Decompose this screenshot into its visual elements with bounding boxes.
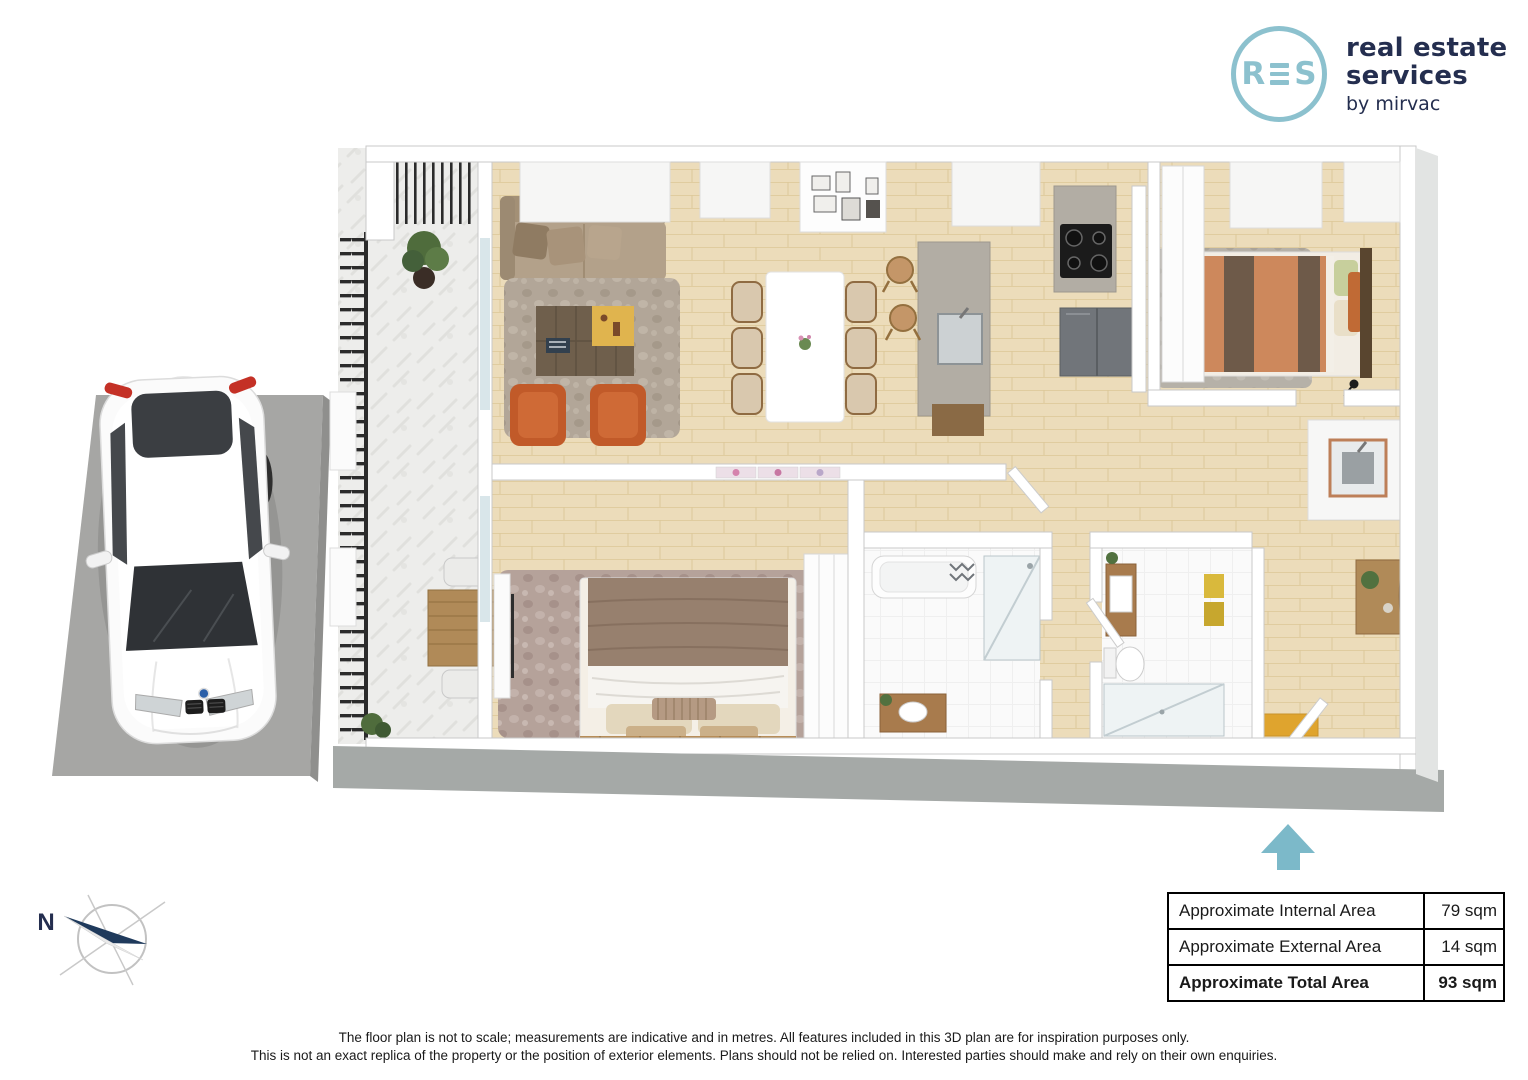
table-row: Approximate External Area 14 sqm — [1168, 929, 1504, 965]
picture-frame — [836, 172, 850, 192]
area-label: Approximate Internal Area — [1168, 893, 1424, 929]
compass-north-label: N — [37, 909, 54, 936]
compass-icon: N — [37, 895, 165, 985]
area-label: Approximate External Area — [1168, 929, 1424, 965]
car-emblem — [199, 688, 209, 698]
windows — [520, 162, 1400, 228]
towel — [1204, 602, 1224, 626]
logo-text: real estate services by mirvac — [1346, 34, 1507, 115]
disclaimer: The floor plan is not to scale; measurem… — [0, 1029, 1528, 1064]
logo-monogram-r: R — [1241, 59, 1265, 90]
master-wardrobe — [804, 554, 848, 738]
basin — [1110, 576, 1132, 612]
book — [546, 338, 570, 353]
bedroom-2-bed — [1192, 248, 1372, 396]
table-row-total: Approximate Total Area 93 sqm — [1168, 965, 1504, 1001]
front-wall-face — [333, 746, 1444, 812]
gallery-wall — [800, 162, 886, 232]
console-table — [1356, 560, 1404, 634]
disclaimer-line-2: This is not an exact replica of the prop… — [0, 1047, 1528, 1065]
basin — [899, 702, 927, 722]
pillow — [1348, 272, 1362, 332]
accent-armchair — [590, 384, 646, 446]
logo-circle-icon: R S — [1231, 26, 1327, 122]
area-value: 14 sqm — [1424, 929, 1504, 965]
planter-ledge — [330, 392, 356, 470]
logo-byline: by mirvac — [1346, 93, 1507, 115]
sliding-glass-door — [480, 238, 490, 410]
picture-frame — [814, 196, 836, 212]
picture-frame — [866, 178, 878, 194]
vanity-plant — [880, 694, 892, 706]
towel — [1204, 574, 1224, 598]
fridge — [1060, 308, 1134, 376]
page: N R S real estate services by mirvac App… — [0, 0, 1528, 1080]
sliding-glass-door — [480, 496, 490, 622]
island-sink — [938, 314, 982, 364]
toilet — [1116, 647, 1144, 681]
tv — [511, 594, 514, 678]
area-label: Approximate Total Area — [1168, 965, 1424, 1001]
laundry-sink — [1330, 440, 1386, 496]
brand-logo: R S real estate services by mirvac — [1231, 26, 1507, 122]
kitchen-island — [918, 242, 990, 436]
logo-line-2: services — [1346, 62, 1507, 90]
picture-frame — [842, 198, 860, 220]
table-row: Approximate Internal Area 79 sqm — [1168, 893, 1504, 929]
logo-line-1: real estate — [1346, 34, 1507, 62]
coffee-table — [536, 306, 634, 376]
cooktop-counter — [1054, 186, 1116, 292]
master-bed — [580, 578, 796, 751]
area-value: 79 sqm — [1424, 893, 1504, 929]
headboard — [1360, 248, 1372, 378]
hallway-artwork — [716, 467, 840, 478]
logo-bars-icon — [1270, 63, 1289, 85]
accent-armchair — [510, 384, 566, 446]
console-plant — [1361, 571, 1379, 589]
disclaimer-line-1: The floor plan is not to scale; measurem… — [0, 1029, 1528, 1047]
vanity-plant — [1106, 552, 1118, 564]
floor-plan — [330, 146, 1444, 812]
area-value: 93 sqm — [1424, 965, 1504, 1001]
bedroom-2-robe — [1162, 166, 1204, 382]
right-wall-face — [1416, 148, 1438, 782]
dining-set — [732, 272, 876, 422]
entry-arrow-icon — [1261, 824, 1315, 870]
picture-frame — [866, 200, 880, 218]
picture-frame — [812, 176, 830, 190]
area-table: Approximate Internal Area 79 sqm Approxi… — [1167, 892, 1505, 1002]
planter-ledge — [330, 548, 356, 626]
logo-monogram-s: S — [1294, 59, 1316, 90]
